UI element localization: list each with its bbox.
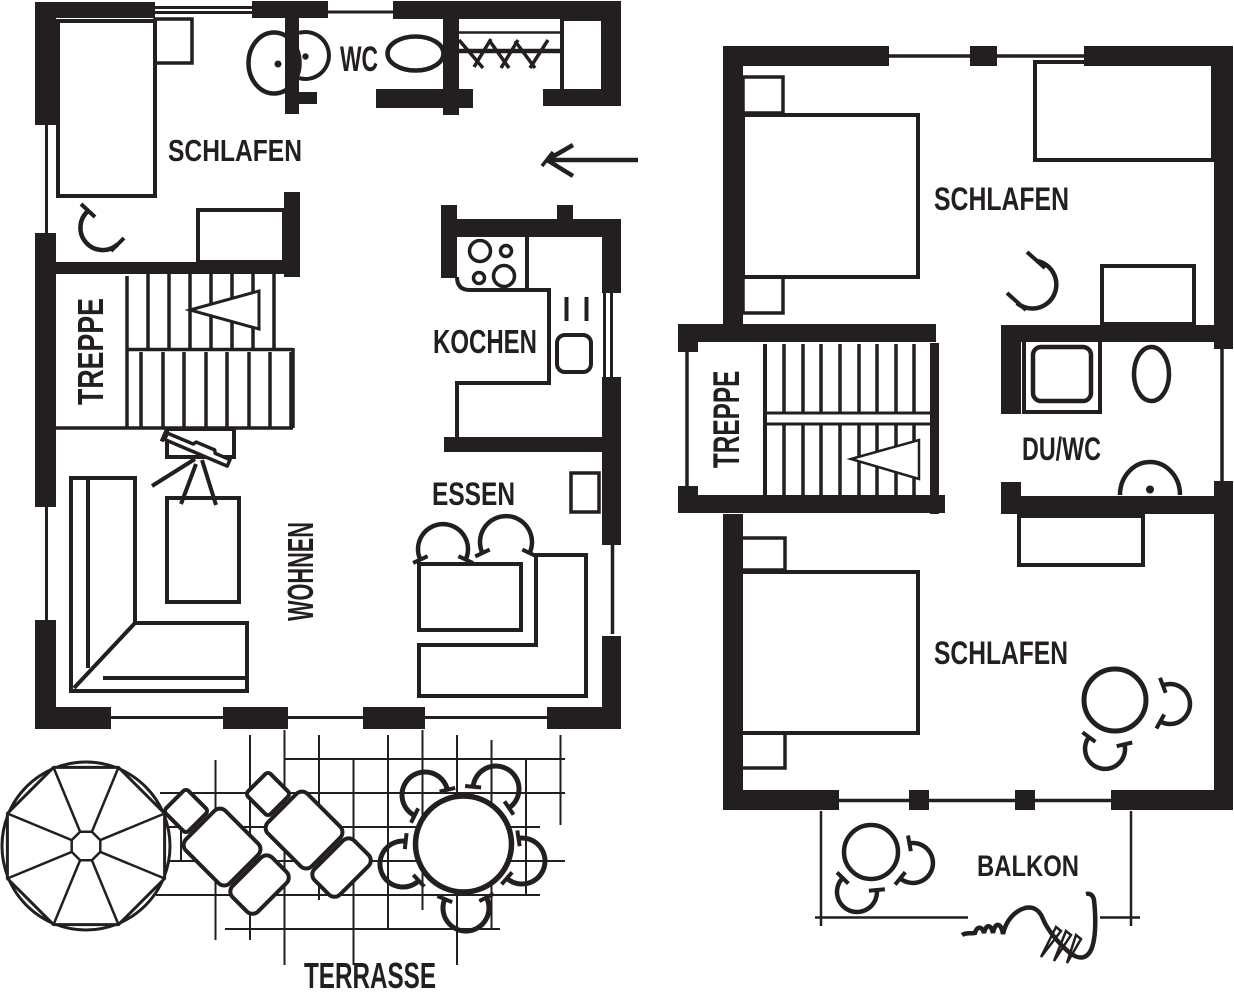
svg-text:DU/WC: DU/WC bbox=[1022, 431, 1101, 467]
svg-text:TREPPE: TREPPE bbox=[706, 371, 747, 469]
svg-text:KOCHEN: KOCHEN bbox=[433, 324, 537, 361]
svg-text:SCHLAFEN: SCHLAFEN bbox=[934, 181, 1069, 217]
svg-text:WOHNEN: WOHNEN bbox=[280, 522, 321, 621]
svg-text:WC: WC bbox=[340, 40, 378, 79]
svg-text:TREPPE: TREPPE bbox=[70, 298, 111, 405]
svg-text:SCHLAFEN: SCHLAFEN bbox=[934, 635, 1068, 671]
svg-text:ESSEN: ESSEN bbox=[432, 476, 515, 512]
svg-text:TERRASSE: TERRASSE bbox=[304, 955, 436, 996]
svg-text:SCHLAFEN: SCHLAFEN bbox=[168, 133, 302, 168]
svg-text:BALKON: BALKON bbox=[977, 850, 1079, 883]
